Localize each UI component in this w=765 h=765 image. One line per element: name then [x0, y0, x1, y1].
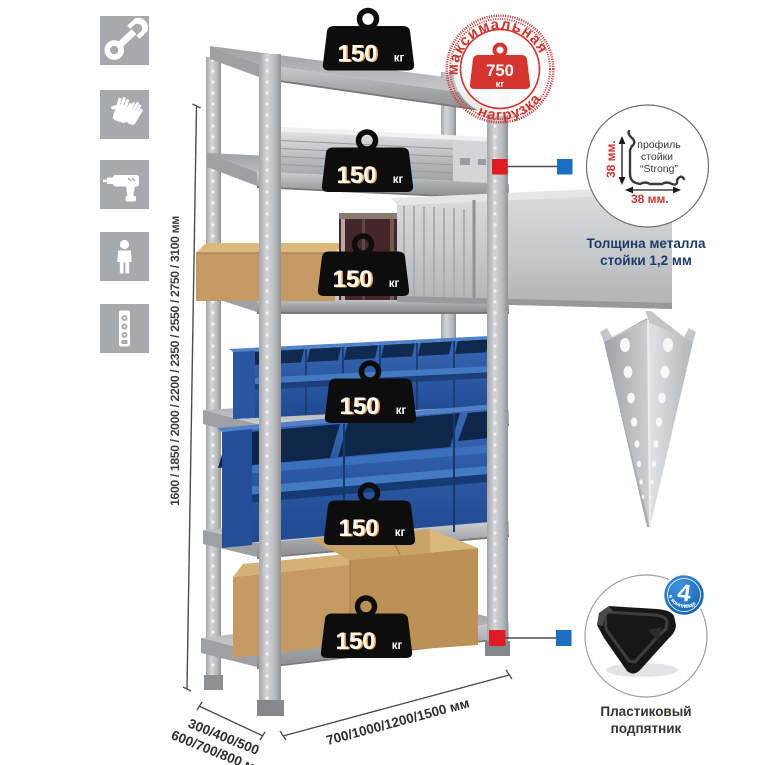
svg-text:стойки: стойки — [641, 151, 673, 163]
svg-text:150: 150 — [335, 628, 375, 655]
svg-text:стойки 1,2 мм: стойки 1,2 мм — [600, 253, 692, 268]
svg-text:кг: кг — [392, 640, 403, 652]
svg-text:150: 150 — [339, 393, 379, 420]
svg-text:1600 / 1850 / 2000 / 2200 / 23: 1600 / 1850 / 2000 / 2200 / 2350 / 2550 … — [168, 216, 182, 506]
svg-text:“Strong”: “Strong” — [640, 163, 678, 175]
svg-text:кг: кг — [395, 527, 406, 539]
svg-text:150: 150 — [336, 162, 376, 189]
svg-text:кг: кг — [389, 278, 400, 290]
svg-text:38 мм.: 38 мм. — [604, 140, 618, 178]
svg-text:150: 150 — [338, 515, 378, 542]
svg-text:150: 150 — [337, 41, 377, 68]
svg-text:150: 150 — [332, 266, 372, 293]
svg-text:Пластиковый: Пластиковый — [600, 704, 691, 719]
svg-text:подпятник: подпятник — [611, 721, 682, 736]
svg-text:кг: кг — [396, 405, 407, 417]
svg-text:38 мм.: 38 мм. — [631, 192, 669, 206]
svg-text:профиль: профиль — [637, 139, 681, 151]
svg-text:Толщина металла: Толщина металла — [586, 236, 706, 251]
svg-text:кг: кг — [496, 79, 505, 90]
svg-text:кг: кг — [393, 174, 404, 186]
svg-text:750: 750 — [486, 62, 514, 80]
svg-text:кг: кг — [394, 53, 405, 65]
